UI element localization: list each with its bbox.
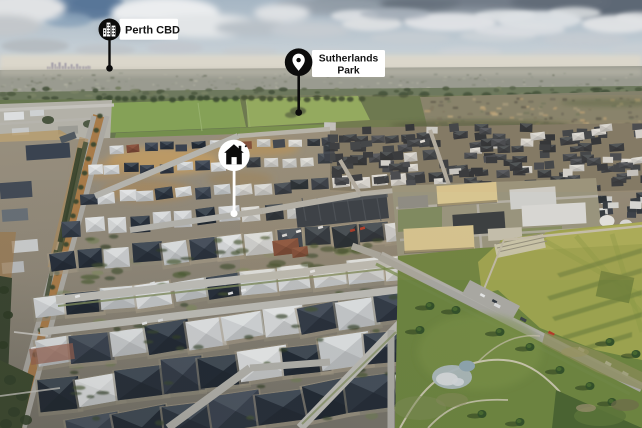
svg-text:Sutherlands: Sutherlands xyxy=(319,54,379,65)
svg-text:Park: Park xyxy=(337,66,360,77)
svg-text:Perth CBD: Perth CBD xyxy=(125,25,180,37)
